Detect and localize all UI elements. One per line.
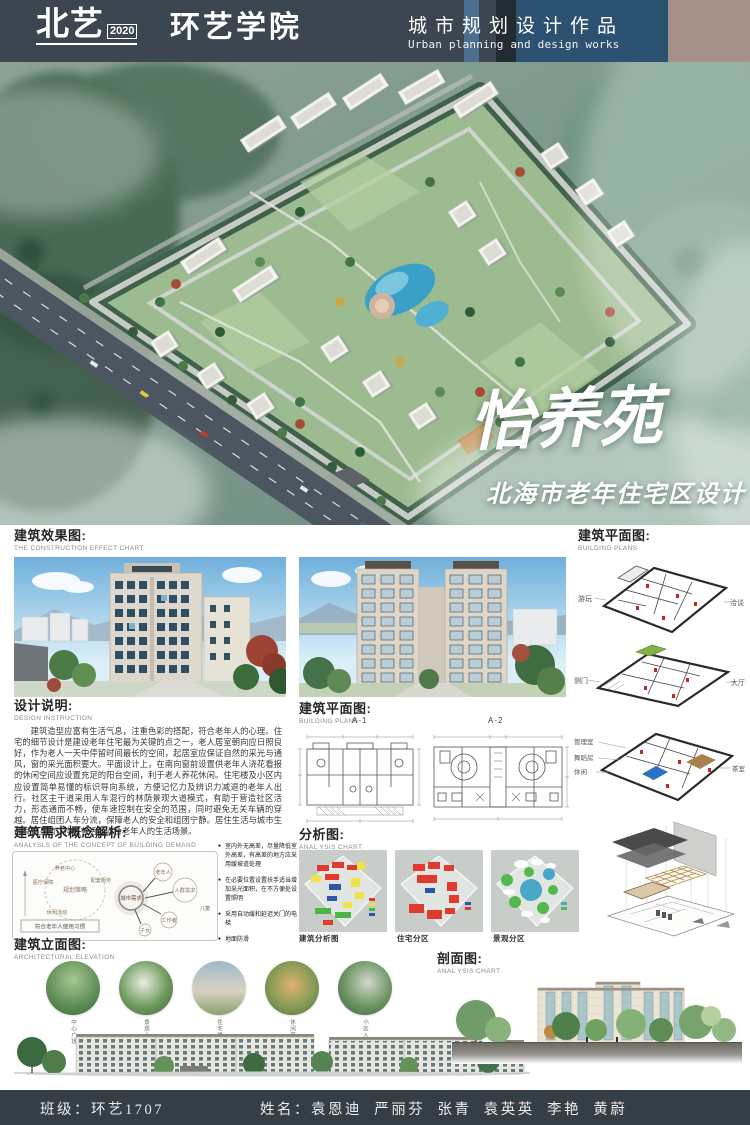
project-subtitle: 北海市老年住宅区设计 xyxy=(430,474,750,509)
axon-plan-3: 管理室 舞蹈房 休闲 茶室 xyxy=(574,716,746,810)
elevation-block-1 xyxy=(76,1034,314,1073)
analysis-caption-3: 景观分区 xyxy=(493,933,525,944)
section-drawing-header: 剖面图: ANAL YSIS CHART xyxy=(437,952,500,975)
work-title-cn: 城市规划设计作品 xyxy=(408,11,624,38)
demand-bullet: 室内外无高差，尽量降低室外高差，有高差的地方应采用缓坡道处理 xyxy=(218,843,298,870)
bubble-s2: 配套服务 xyxy=(91,876,112,884)
logo-text: 北艺 xyxy=(36,7,104,40)
plans-right-title: 建筑平面图: xyxy=(578,529,650,543)
design-section-header: 设计说明: DESIGN INSTRUCTION xyxy=(14,699,92,722)
demand-title: 建筑需求概念解析: xyxy=(14,826,196,840)
work-title-en: Urban planning and design works xyxy=(408,38,620,51)
bubble-diagram-frame: 规划策略 养老中心 配套服务 医疗保障 休闲活动 城市需求 人群需求 老年人 工… xyxy=(12,851,218,941)
bubble-center: 城市需求 xyxy=(120,894,142,902)
design-description: 建筑造型应富有生活气息，注重色彩的搭配，符合老年人的心理。住宅的细节设计是建设老… xyxy=(14,726,282,837)
demand-bullet-list: 室内外无高差，尽量降低室外高差，有高差的地方应采用缓坡道处理 在必要位置设置扶手… xyxy=(218,843,298,952)
exploded-axon-diagram xyxy=(596,814,746,950)
axon3-label-right: 茶室 xyxy=(732,764,746,773)
bubble-p3: 子女 xyxy=(140,926,150,934)
elevation-photo-circle xyxy=(192,961,246,1015)
distant-building xyxy=(513,609,557,645)
analysis-chart-buildings xyxy=(299,850,387,932)
axon3-label-1: 管理室 xyxy=(574,737,594,746)
design-title: 设计说明: xyxy=(14,699,92,713)
header-block-taupe xyxy=(668,0,750,62)
axon1-label-left: 游玩 xyxy=(578,594,592,603)
axon3-label-2: 舞蹈房 xyxy=(574,753,594,762)
header-bar: 北艺 2020 环艺学院 城市规划设计作品 Urban planning and… xyxy=(0,0,750,62)
effect-image-2 xyxy=(299,557,566,697)
axon-plan-2: 侧门 大厅 xyxy=(574,642,746,714)
analysis-section-header: 分析图: ANAL YSIS CHART xyxy=(299,828,362,851)
plans-right-subtitle: BUILDING PLANS xyxy=(578,545,650,552)
footer-names: 姓名：袁恩迪 严丽芬 张青 袁英英 李艳 黄蔚 xyxy=(260,1098,627,1119)
effect-title: 建筑效果图: xyxy=(14,529,144,543)
elevation-title: 建筑立面图: xyxy=(14,938,115,952)
axon2-label-left: 侧门 xyxy=(574,676,588,685)
demand-bullet: 采用自动缓和延迟关门的电梯 xyxy=(218,911,298,929)
bubble-p2: 工作者 xyxy=(161,916,177,924)
bubble-strategy: 规划策略 xyxy=(63,886,87,894)
bubble-s3: 医疗保障 xyxy=(33,878,54,886)
axon2-label-right: 大厅 xyxy=(731,678,745,687)
plans-right-header: 建筑平面图: BUILDING PLANS xyxy=(578,529,650,552)
analysis-chart-landscape xyxy=(491,850,579,932)
analysis-caption-1: 建筑分析图 xyxy=(299,933,339,944)
section-drawing xyxy=(446,980,748,1080)
poster-board: 北艺 2020 环艺学院 城市规划设计作品 Urban planning and… xyxy=(0,0,750,1125)
section-title: 剖面图: xyxy=(437,952,500,966)
elevation-photo-circle xyxy=(119,961,173,1015)
effect-image-1 xyxy=(14,557,286,697)
bubble-pmain: 人群需求 xyxy=(175,886,197,894)
elevation-section-header: 建筑立面图: ARCHITECTURAL ELEVATION xyxy=(14,938,115,961)
bubble-note: 符合老年人使用习惯 xyxy=(35,923,86,931)
section-ground xyxy=(452,1042,742,1064)
floor-plan-a1 xyxy=(297,731,423,825)
demand-section-header: 建筑需求概念解析: ANALYSLS OF THE CONCEPT OF BUI… xyxy=(14,826,196,849)
effect-subtitle: THE CONSTRUCTION EFFECT CHART xyxy=(14,545,144,552)
plan-a1-label: A-1 xyxy=(352,716,367,725)
bubble-diagram: 规划策略 养老中心 配套服务 医疗保障 休闲活动 城市需求 人群需求 老年人 工… xyxy=(13,852,215,938)
plans-mid-title: 建筑平面图: xyxy=(299,702,371,716)
floor-plan-a2 xyxy=(426,731,570,825)
demand-bullet: 地面防滑 xyxy=(218,936,298,945)
plan-a2-label: A-2 xyxy=(488,716,503,725)
logo-year-badge: 2020 xyxy=(107,24,137,39)
bubble-p1: 老年人 xyxy=(155,868,171,876)
analysis-caption-2: 住宅分区 xyxy=(397,933,429,944)
school-logo: 北艺 2020 xyxy=(36,7,137,45)
demand-subtitle: ANALYSLS OF THE CONCEPT OF BUILDING DEMA… xyxy=(14,842,196,849)
elevation-subtitle: ARCHITECTURAL ELEVATION xyxy=(14,954,115,961)
analysis-title: 分析图: xyxy=(299,828,362,842)
demand-bullet: 在必要位置设置扶手适当增加采光面积，在不方便处设置照明 xyxy=(218,877,298,904)
college-name: 环艺学院 xyxy=(170,13,302,43)
footer-class: 班级：环艺1707 xyxy=(40,1098,164,1119)
bubble-p4: 儿童 xyxy=(200,904,210,912)
design-subtitle: DESIGN INSTRUCTION xyxy=(14,715,92,722)
analysis-chart-residential xyxy=(395,850,483,932)
main-building xyxy=(110,563,202,689)
bubble-s1: 养老中心 xyxy=(55,864,76,872)
axon-plan-1: 游玩 洽谈 xyxy=(574,554,746,640)
footer-bar: 班级：环艺1707 姓名：袁恩迪 严丽芬 张青 袁英英 李艳 黄蔚 xyxy=(0,1090,750,1125)
section-subtitle: ANAL YSIS CHART xyxy=(437,968,500,975)
bubble-s4: 休闲活动 xyxy=(47,908,68,916)
axon1-label-right: 洽谈 xyxy=(730,598,744,607)
project-title: 怡养苑 xyxy=(415,383,717,457)
elevation-photo-circle xyxy=(46,961,100,1015)
effect-section-header: 建筑效果图: THE CONSTRUCTION EFFECT CHART xyxy=(14,529,144,552)
tower-2 xyxy=(445,561,507,687)
elevation-photo-circle xyxy=(338,961,392,1015)
axon3-label-3: 休闲 xyxy=(574,767,587,776)
elevation-photo-circle xyxy=(265,961,319,1015)
tower-1 xyxy=(357,561,419,687)
aerial-rendering xyxy=(0,62,750,525)
